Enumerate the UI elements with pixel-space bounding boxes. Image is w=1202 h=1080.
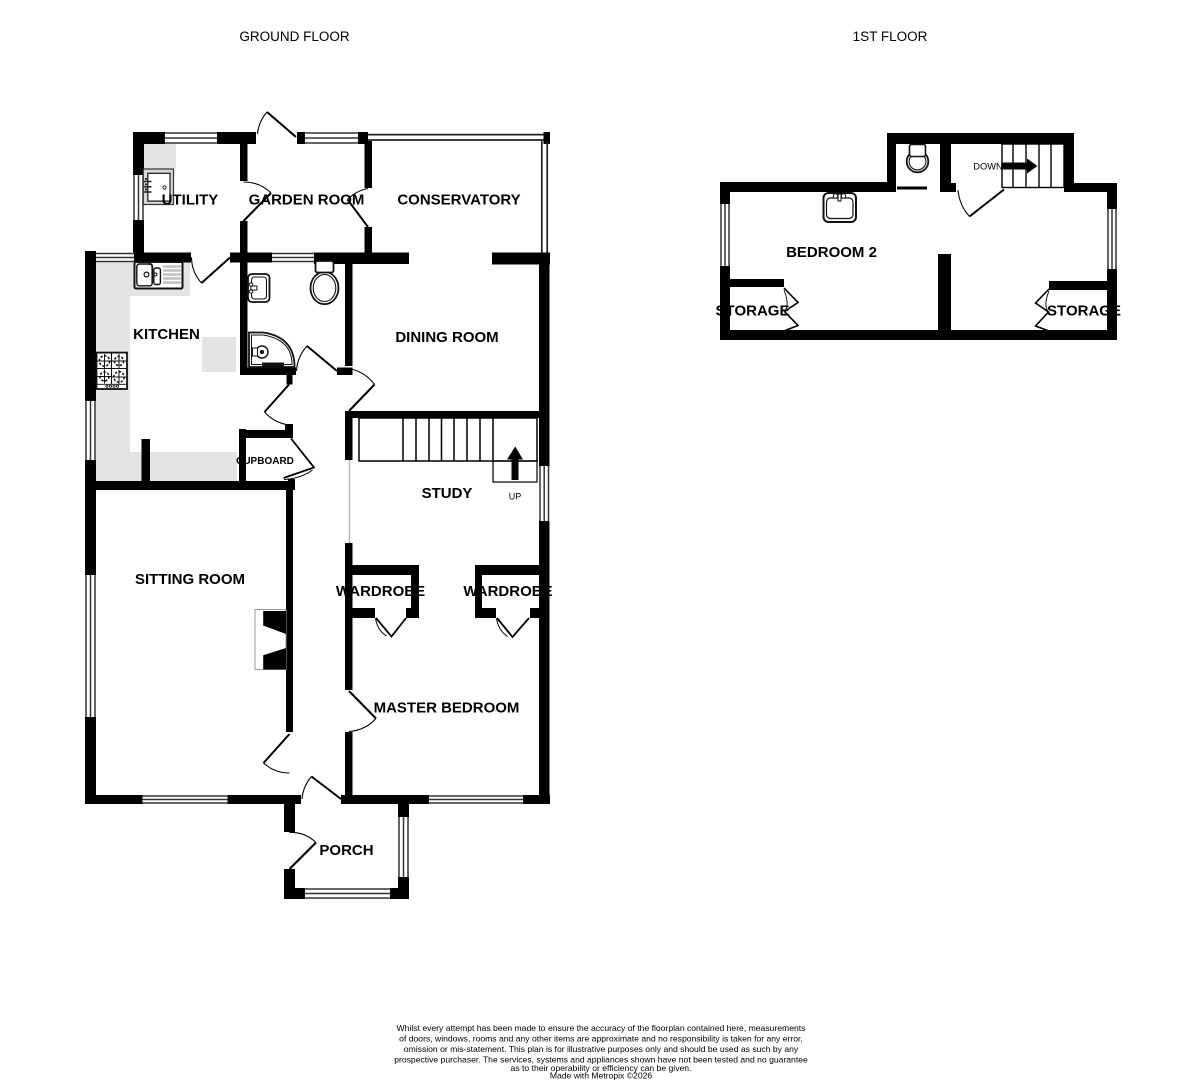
svg-text:of doors, windows, rooms and a: of doors, windows, rooms and any other i… — [399, 1034, 803, 1044]
svg-text:CONSERVATORY: CONSERVATORY — [397, 192, 520, 209]
svg-text:GARDEN ROOM: GARDEN ROOM — [249, 192, 365, 209]
svg-text:Whilst every attempt has been: Whilst every attempt has been made to en… — [397, 1023, 806, 1033]
svg-text:Made with Metropix ©2026: Made with Metropix ©2026 — [550, 1071, 653, 1080]
svg-text:WARDROBE: WARDROBE — [463, 583, 552, 600]
svg-text:STORAGE: STORAGE — [1047, 303, 1121, 320]
svg-text:GROUND FLOOR: GROUND FLOOR — [239, 29, 350, 44]
svg-text:WARDROBE: WARDROBE — [336, 583, 425, 600]
svg-text:CUPBOARD: CUPBOARD — [236, 456, 294, 467]
svg-text:BEDROOM 2: BEDROOM 2 — [786, 244, 877, 261]
svg-text:SITTING ROOM: SITTING ROOM — [135, 571, 245, 588]
svg-text:omission or mis-statement. Thi: omission or mis-statement. This plan is … — [404, 1044, 799, 1054]
svg-text:DOWN: DOWN — [973, 162, 1002, 172]
svg-text:KITCHEN: KITCHEN — [133, 326, 200, 343]
svg-text:DINING ROOM: DINING ROOM — [395, 329, 498, 346]
svg-text:PORCH: PORCH — [319, 842, 373, 859]
svg-text:1ST FLOOR: 1ST FLOOR — [853, 29, 928, 44]
svg-text:UTILITY: UTILITY — [162, 192, 219, 209]
svg-text:STUDY: STUDY — [422, 485, 473, 502]
svg-text:STORAGE: STORAGE — [716, 303, 790, 320]
svg-text:MASTER BEDROOM: MASTER BEDROOM — [374, 700, 520, 717]
svg-text:UP: UP — [509, 492, 522, 502]
